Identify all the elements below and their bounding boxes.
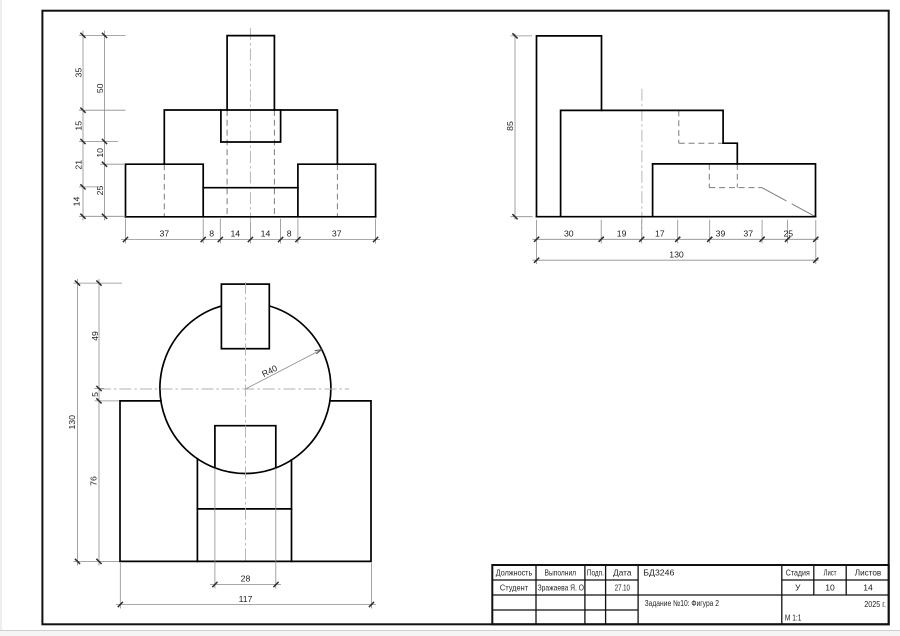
svg-text:49: 49	[90, 331, 100, 341]
svg-text:37: 37	[743, 229, 753, 239]
svg-text:37: 37	[159, 229, 169, 239]
svg-text:Стадия: Стадия	[786, 568, 810, 578]
svg-text:25: 25	[95, 186, 105, 196]
svg-text:130: 130	[67, 415, 77, 430]
svg-text:15: 15	[74, 121, 84, 131]
svg-text:Листов: Листов	[855, 568, 882, 578]
svg-text:30: 30	[564, 229, 574, 239]
svg-text:76: 76	[89, 476, 99, 486]
svg-text:28: 28	[241, 574, 251, 584]
svg-text:85: 85	[505, 121, 515, 131]
svg-text:Студент: Студент	[500, 583, 528, 593]
svg-text:Дата: Дата	[613, 568, 632, 578]
svg-text:Подп.: Подп.	[587, 568, 604, 578]
svg-text:Выполнил: Выполнил	[545, 568, 577, 578]
svg-text:14: 14	[230, 229, 240, 239]
svg-text:27.10: 27.10	[615, 583, 630, 593]
svg-text:50: 50	[95, 83, 105, 93]
svg-text:2025 г.: 2025 г.	[864, 599, 886, 609]
svg-text:М 1:1: М 1:1	[785, 613, 802, 623]
svg-text:21: 21	[74, 160, 84, 170]
svg-text:5: 5	[90, 392, 100, 397]
svg-text:10: 10	[95, 148, 105, 158]
svg-text:14: 14	[863, 583, 873, 593]
svg-text:10: 10	[825, 583, 835, 593]
svg-text:Лист: Лист	[824, 568, 837, 578]
svg-text:У: У	[795, 583, 801, 593]
svg-text:8: 8	[287, 229, 292, 239]
svg-text:Зражаева Я. О: Зражаева Я. О	[538, 583, 585, 593]
svg-text:14: 14	[72, 197, 82, 207]
svg-text:Должность: Должность	[496, 568, 533, 578]
svg-text:14: 14	[261, 229, 271, 239]
svg-text:17: 17	[655, 229, 665, 239]
svg-text:35: 35	[74, 68, 84, 78]
svg-text:39: 39	[716, 229, 726, 239]
svg-text:25: 25	[783, 229, 793, 239]
svg-text:Задание №10: Фигура 2: Задание №10: Фигура 2	[645, 598, 720, 608]
svg-text:19: 19	[617, 229, 627, 239]
svg-text:БД3246: БД3246	[643, 568, 674, 578]
svg-text:8: 8	[209, 229, 214, 239]
svg-text:130: 130	[669, 249, 684, 259]
svg-text:117: 117	[239, 594, 253, 604]
svg-text:37: 37	[332, 229, 342, 239]
